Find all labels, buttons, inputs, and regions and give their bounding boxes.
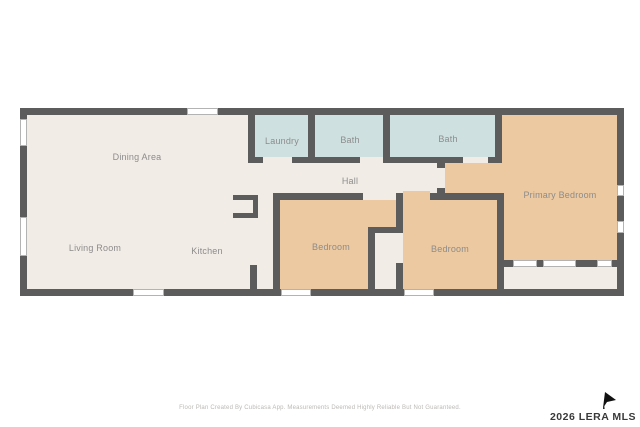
wall-outer-right	[617, 108, 624, 296]
wall-bedroom2-primary	[497, 193, 504, 296]
wall-hall-top-seg1	[248, 157, 263, 163]
room-fill-bedroom-2	[403, 197, 497, 289]
window-symbol	[617, 185, 624, 196]
window-symbol	[20, 217, 27, 256]
wall-kitchen-stub	[250, 265, 257, 296]
room-fill-primary-bedroom	[502, 114, 617, 260]
room-label-bath-2: Bath	[438, 134, 457, 144]
wall-outer-bottom	[20, 289, 624, 296]
wall-closet-divider	[368, 227, 403, 233]
room-label-bath-1: Bath	[340, 135, 359, 145]
wall-bedroom1-top	[273, 193, 363, 200]
window-symbol	[187, 108, 218, 115]
wall-primary-bottom-seg4	[612, 260, 620, 267]
wall-hall-top-seg2	[292, 157, 360, 163]
wall-hall-top-seg3	[383, 157, 463, 163]
room-label-bedroom-1: Bedroom	[312, 242, 350, 252]
wall-bedroom1-right	[368, 227, 375, 296]
window-symbol	[281, 289, 311, 296]
window-symbol	[543, 260, 576, 267]
room-label-hall: Hall	[342, 176, 358, 186]
wall-bedroom1-left	[273, 193, 280, 296]
wall-primary-bottom-seg3	[576, 260, 597, 267]
wall-laundry-bath1	[308, 114, 315, 163]
wall-primary-bottom-seg1	[502, 260, 513, 267]
room-label-bedroom-2: Bedroom	[431, 244, 469, 254]
room-label-primary-bedroom: Primary Bedroom	[523, 190, 596, 200]
flag-icon	[596, 391, 618, 410]
wall-laundry-left	[248, 114, 255, 163]
wall-bath2-right	[495, 114, 502, 163]
window-symbol	[404, 289, 434, 296]
wall-jamb-upper	[437, 163, 445, 168]
window-symbol	[597, 260, 612, 267]
disclaimer-text: Floor Plan Created By Cubicasa App. Meas…	[0, 405, 640, 411]
room-fill-primary-entry-nook	[445, 163, 502, 193]
mls-watermark: 2026 LERA MLS	[550, 411, 636, 423]
wall-bedroom2-left-upper	[396, 193, 403, 228]
wall-bedroom2-left-lower	[396, 263, 403, 296]
window-symbol	[20, 119, 27, 146]
room-label-dining-area: Dining Area	[113, 152, 162, 162]
room-label-kitchen: Kitchen	[191, 246, 222, 256]
wall-pantry-bottom	[233, 213, 258, 218]
window-symbol	[133, 289, 164, 296]
window-symbol	[513, 260, 537, 267]
window-symbol	[617, 221, 624, 233]
wall-outer-top	[20, 108, 624, 115]
wall-hall-top-seg4	[488, 157, 502, 163]
wall-bedroom2-top	[430, 193, 503, 200]
room-label-laundry: Laundry	[265, 136, 299, 146]
room-label-living-room: Living Room	[69, 243, 121, 253]
floor-plan: Dining Area Living Room Kitchen Laundry …	[0, 0, 640, 427]
wall-bath1-bath2	[383, 114, 390, 163]
